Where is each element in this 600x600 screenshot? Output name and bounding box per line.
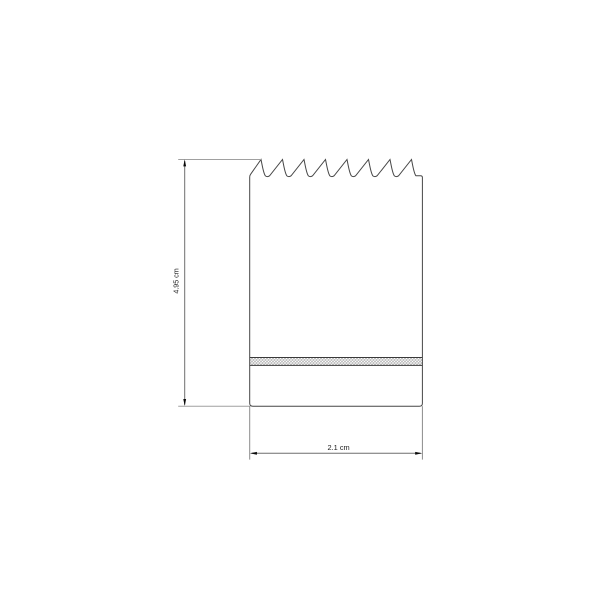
svg-text:2.1 cm: 2.1 cm xyxy=(328,443,350,452)
svg-text:4.95 cm: 4.95 cm xyxy=(173,268,181,293)
